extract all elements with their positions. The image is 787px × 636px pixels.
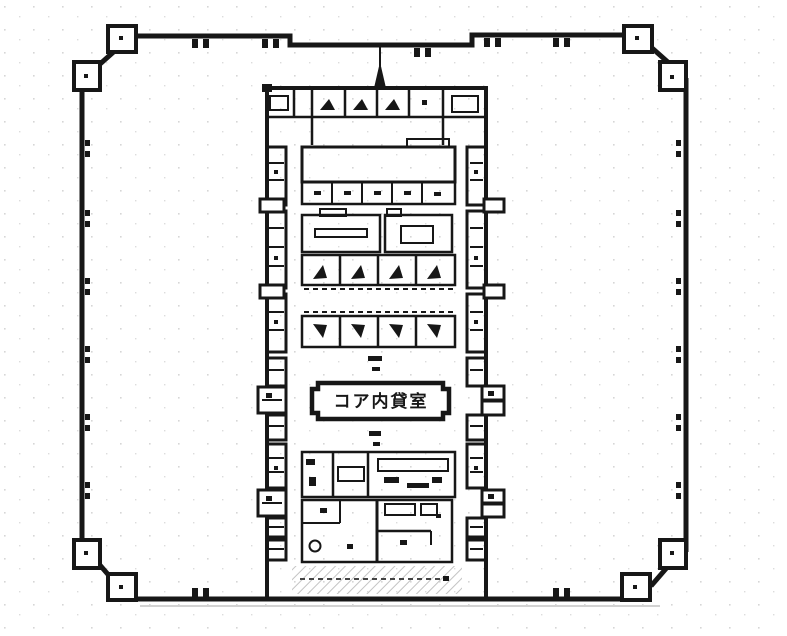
- building-floor-plan: コア内貸室: [0, 0, 787, 636]
- core-bottom-lobby: [292, 566, 462, 594]
- core-rental-room-label: コア内貸室: [334, 391, 429, 412]
- floor-plan-page: コア内貸室: [0, 0, 787, 636]
